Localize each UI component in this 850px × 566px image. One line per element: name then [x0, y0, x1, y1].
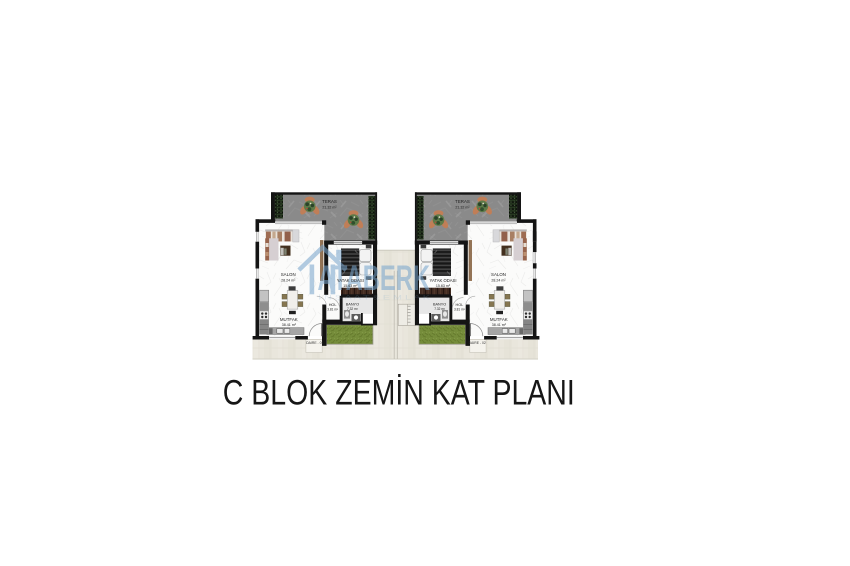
- svg-text:BANYO: BANYO: [433, 303, 446, 307]
- svg-text:MUTFAK: MUTFAK: [490, 317, 508, 322]
- svg-text:MUTFAK: MUTFAK: [280, 317, 298, 322]
- svg-text:3.81 m²: 3.81 m²: [454, 308, 465, 312]
- svg-text:15.63 m²: 15.63 m²: [343, 284, 358, 288]
- svg-text:TERAS: TERAS: [322, 199, 337, 204]
- svg-text:ATABERK: ATABERK: [318, 258, 431, 298]
- svg-text:C BLOK ZEMİN KAT PLANI: C BLOK ZEMİN KAT PLANI: [223, 374, 575, 413]
- svg-text:21.32 m²: 21.32 m²: [455, 206, 470, 210]
- svg-text:TERAS: TERAS: [455, 199, 470, 204]
- svg-text:SALON: SALON: [491, 272, 506, 277]
- svg-text:HOL: HOL: [455, 303, 463, 307]
- svg-text:38.41 m²: 38.41 m²: [492, 323, 507, 327]
- svg-text:38.41 m²: 38.41 m²: [282, 323, 297, 327]
- svg-text:YATAK ODASI: YATAK ODASI: [337, 278, 364, 283]
- svg-text:7.32 m²: 7.32 m²: [434, 307, 445, 311]
- svg-text:BANYO: BANYO: [346, 303, 359, 307]
- svg-text:HOL: HOL: [329, 303, 337, 307]
- svg-text:15.63 m²: 15.63 m²: [436, 284, 451, 288]
- svg-text:28.24 m²: 28.24 m²: [281, 278, 296, 282]
- svg-text:7.32 m²: 7.32 m²: [347, 307, 358, 311]
- svg-text:3.81 m²: 3.81 m²: [327, 308, 338, 312]
- svg-text:YATAK ODASI: YATAK ODASI: [430, 278, 457, 283]
- svg-text:DAIRE - 02: DAIRE - 02: [469, 341, 486, 345]
- svg-text:21.32 m²: 21.32 m²: [322, 206, 337, 210]
- svg-text:İ N Ş A A T & E M L A K: İ N Ş A A T & E M L A K: [318, 293, 431, 302]
- svg-text:28.24 m²: 28.24 m²: [491, 278, 506, 282]
- svg-text:SALON: SALON: [281, 272, 296, 277]
- svg-text:DAIRE - 01: DAIRE - 01: [306, 341, 323, 345]
